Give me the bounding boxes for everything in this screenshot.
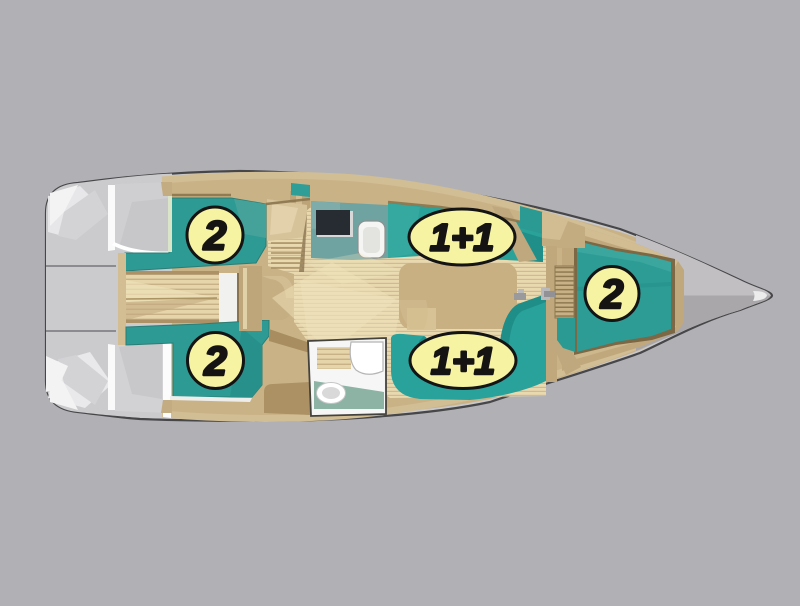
svg-text:1+1: 1+1 <box>430 218 494 260</box>
svg-text:2: 2 <box>600 271 624 317</box>
svg-text:2: 2 <box>203 338 227 384</box>
svg-text:1+1: 1+1 <box>431 341 495 383</box>
svg-text:2: 2 <box>203 213 227 259</box>
